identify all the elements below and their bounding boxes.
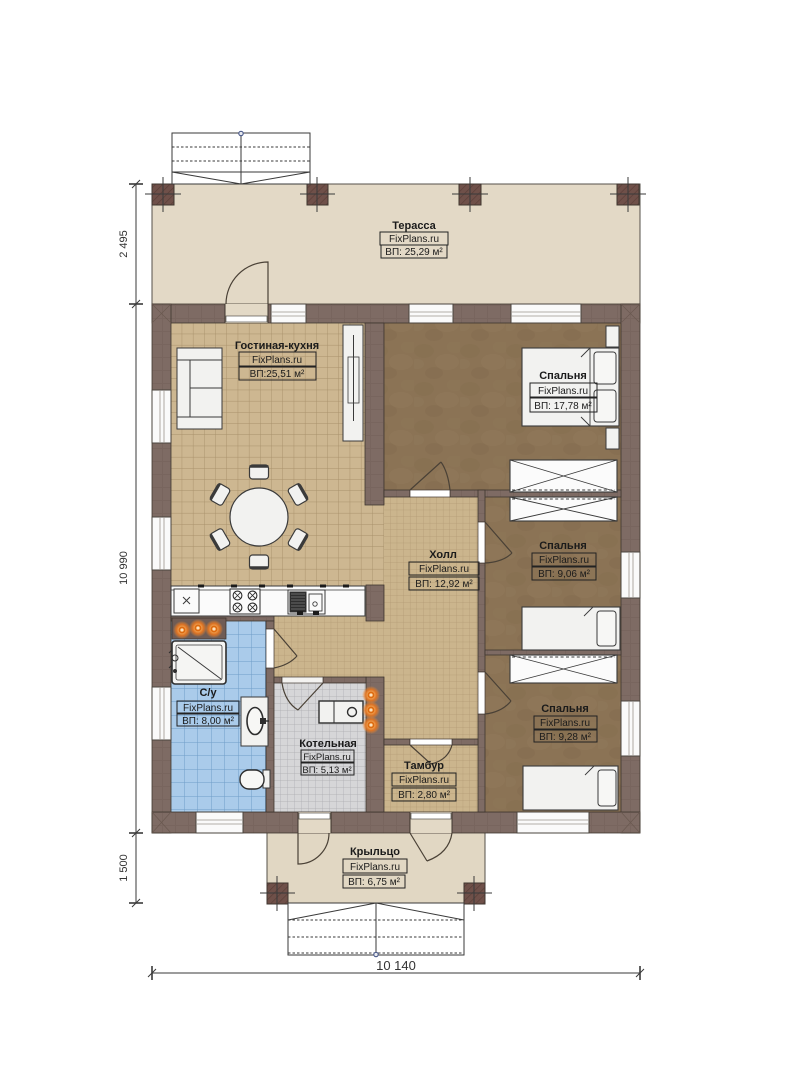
svg-text:Гостиная-кухня: Гостиная-кухня [235, 340, 319, 352]
svg-text:FixPlans.ru: FixPlans.ru [350, 862, 400, 873]
svg-text:FixPlans.ru: FixPlans.ru [399, 775, 449, 786]
svg-text:ВП: 9,06 м²: ВП: 9,06 м² [538, 569, 591, 580]
svg-text:ВП: 12,92 м²: ВП: 12,92 м² [415, 579, 473, 590]
svg-text:ВП: 2,80 м²: ВП: 2,80 м² [398, 790, 451, 801]
svg-text:FixPlans.ru: FixPlans.ru [303, 752, 351, 763]
svg-text:10 140: 10 140 [376, 958, 416, 973]
svg-text:2 495: 2 495 [118, 230, 130, 258]
svg-text:ВП: 25,29 м²: ВП: 25,29 м² [385, 247, 443, 258]
svg-text:Тамбур: Тамбур [404, 760, 444, 772]
svg-text:FixPlans.ru: FixPlans.ru [538, 386, 588, 397]
svg-text:Спальня: Спальня [539, 370, 587, 382]
svg-text:ВП: 5,13 м²: ВП: 5,13 м² [302, 765, 351, 776]
svg-text:FixPlans.ru: FixPlans.ru [389, 234, 439, 245]
svg-text:Крыльцо: Крыльцо [350, 846, 400, 858]
svg-text:Спальня: Спальня [539, 540, 587, 552]
svg-text:Терасса: Терасса [392, 220, 436, 232]
svg-text:Котельная: Котельная [299, 738, 357, 750]
svg-text:Холл: Холл [429, 549, 457, 561]
svg-text:FixPlans.ru: FixPlans.ru [539, 555, 589, 566]
svg-text:10 990: 10 990 [118, 551, 130, 585]
svg-text:ВП: 9,28 м²: ВП: 9,28 м² [539, 732, 592, 743]
svg-text:С/у: С/у [199, 687, 217, 699]
svg-text:Спальня: Спальня [541, 703, 589, 715]
svg-text:ВП: 6,75 м²: ВП: 6,75 м² [348, 877, 401, 888]
svg-text:FixPlans.ru: FixPlans.ru [252, 355, 302, 366]
svg-text:FixPlans.ru: FixPlans.ru [419, 564, 469, 575]
svg-text:FixPlans.ru: FixPlans.ru [540, 718, 590, 729]
svg-text:FixPlans.ru: FixPlans.ru [183, 703, 233, 714]
svg-text:ВП: 8,00 м²: ВП: 8,00 м² [182, 716, 235, 727]
svg-text:ВП: 17,78 м²: ВП: 17,78 м² [534, 401, 592, 412]
svg-text:1 500: 1 500 [118, 854, 130, 882]
svg-text:ВП:25,51 м²: ВП:25,51 м² [250, 369, 305, 380]
